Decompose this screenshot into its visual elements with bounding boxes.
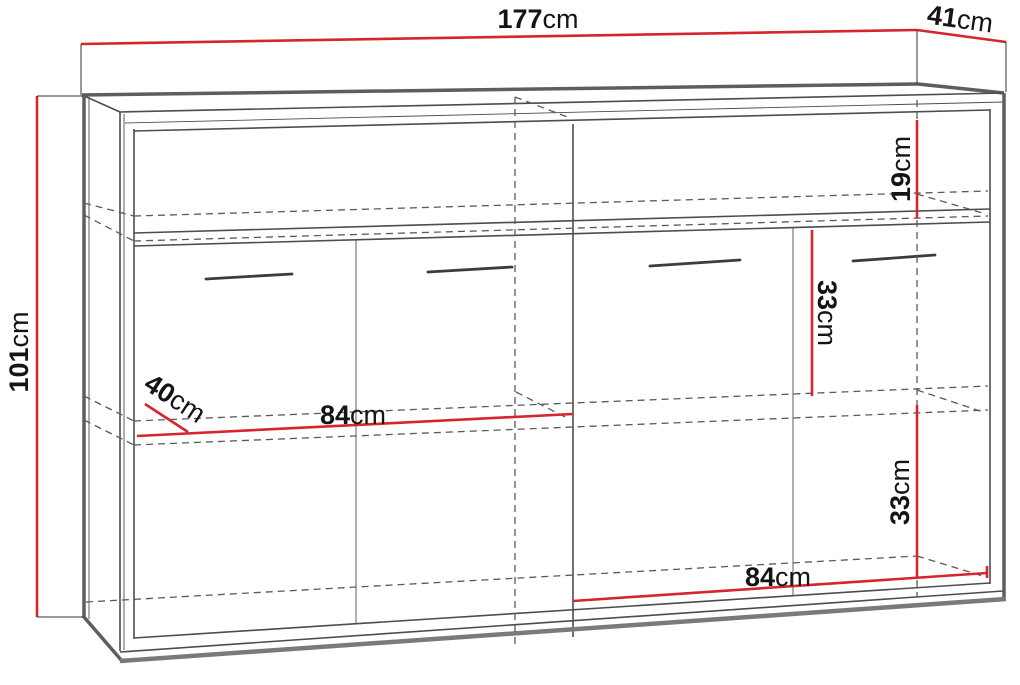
niche-depth-dash-left-1 [84, 203, 134, 216]
bottom-left-depth-edge [84, 617, 122, 661]
dim-unit-inner-width-left: cm [350, 400, 386, 430]
dim-label-upper-section: 33cm [812, 280, 842, 346]
door-handles [206, 255, 935, 279]
dim-unit-width: cm [543, 4, 579, 34]
furniture-dimension-diagram: 177cm 41cm 101cm 19cm 33cm 33cm 40cm 84c… [0, 0, 1020, 685]
dim-unit-lower-section: cm [885, 459, 915, 495]
extension-lines [37, 30, 1006, 617]
dim-label-inner-width-right: 84cm [745, 562, 811, 592]
door-top-edge [134, 222, 990, 246]
niche-depth-dash-left-2 [84, 215, 134, 241]
mid-depth-dash-left-1 [84, 396, 134, 421]
hidden-edges [84, 97, 988, 645]
dim-unit-height: cm [4, 311, 34, 347]
dim-value-inner-width-right: 84 [745, 562, 775, 592]
dim-value-inner-width-left: 84 [320, 400, 350, 430]
dim-label-width: 177cm [497, 4, 578, 34]
cabinet-top-back-edge [82, 84, 918, 95]
dim-unit-upper-section: cm [812, 310, 842, 346]
dim-value-depth: 41 [925, 0, 959, 34]
cabinet-top-front-edge [120, 93, 1004, 112]
mid-depth-dash-right [917, 390, 983, 412]
cabinet-top-left-depth-edge [82, 95, 120, 112]
dim-label-inner-width-left: 84cm [320, 400, 386, 430]
door-handle-2 [428, 267, 512, 272]
dim-value-lower-section: 33 [885, 495, 915, 525]
plinth-bottom-edge [120, 591, 1003, 652]
door-handle-4 [853, 255, 935, 261]
dim-unit-niche-height: cm [886, 136, 916, 172]
frame-inner-top-edge [134, 110, 990, 131]
dim-label-lower-section: 33cm [885, 459, 915, 525]
niche-shelf-front-edge [134, 209, 990, 233]
dim-value-niche-height: 19 [886, 172, 916, 202]
dim-value-height: 101 [4, 347, 34, 392]
sideboard-diagram-svg: 177cm 41cm 101cm 19cm 33cm 33cm 40cm 84c… [0, 0, 1020, 685]
dim-unit-depth: cm [955, 4, 995, 39]
cabinet-top-right-depth-edge [918, 84, 1004, 93]
door-handle-1 [206, 274, 292, 279]
dim-label-niche-height: 19cm [886, 136, 916, 202]
top-center-depth-dash [515, 97, 570, 118]
mid-depth-dash-left-2 [84, 420, 134, 445]
dim-unit-inner-width-right: cm [775, 562, 811, 592]
dimension-lines [37, 30, 1006, 617]
dim-value-width: 177 [497, 4, 542, 34]
door-handle-3 [650, 260, 740, 266]
niche-shelf-hidden-front [134, 216, 988, 241]
dim-value-upper-section: 33 [812, 280, 842, 310]
cabinet-drawing [82, 84, 1006, 661]
dim-label-height: 101cm [4, 311, 34, 392]
